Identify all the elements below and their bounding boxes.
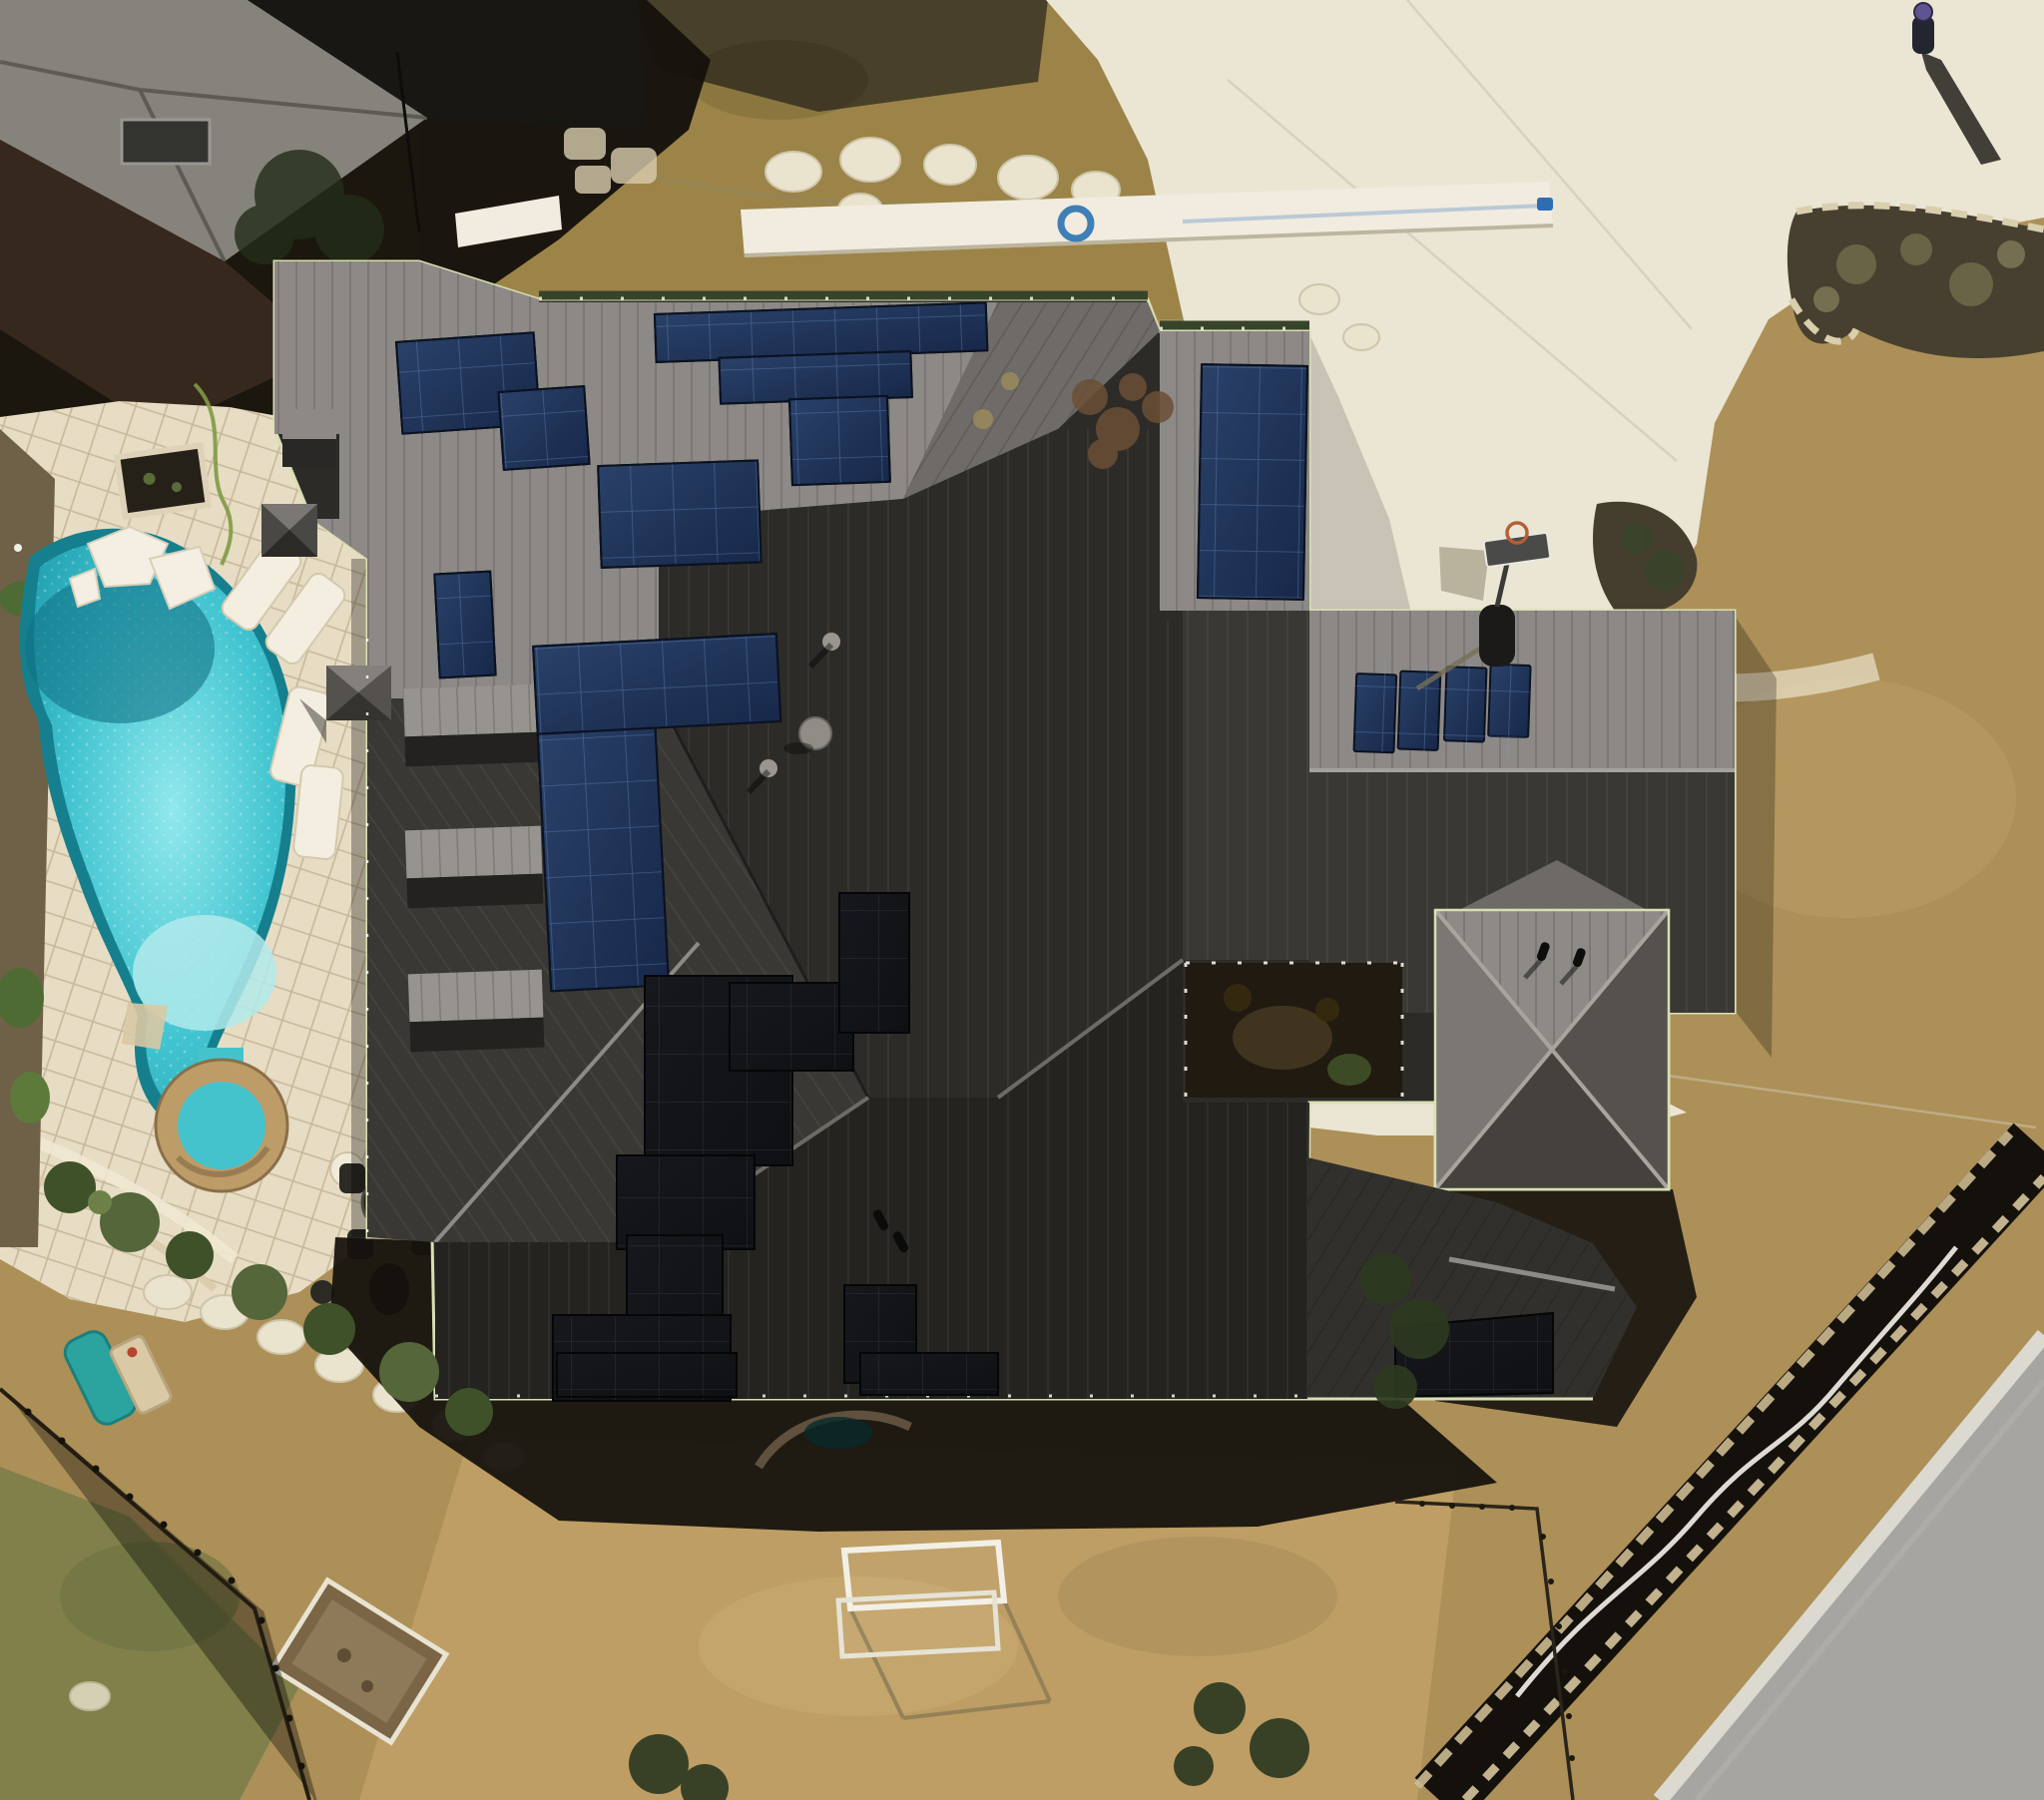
plane-center-east-seams xyxy=(1183,611,1309,960)
courtyard-plant xyxy=(1327,1054,1371,1086)
skimmer-head xyxy=(1537,198,1553,211)
planter-box xyxy=(117,445,209,516)
golf-ball xyxy=(14,544,22,552)
lawn-mottle-2 xyxy=(689,40,868,120)
pool-entry-step xyxy=(122,1003,168,1050)
west-wall-shadow xyxy=(351,559,367,1237)
dormer-bumpouts xyxy=(403,684,545,1053)
array-top-right-2x4 xyxy=(1198,364,1307,600)
hoop-base xyxy=(1479,605,1515,667)
deck-vent-pyramid xyxy=(261,504,317,557)
east-wall-shadow xyxy=(1737,619,1777,1058)
person-head xyxy=(1914,3,1932,21)
shadow-spa-water xyxy=(804,1417,872,1449)
nw-box-bumpout xyxy=(282,409,336,467)
array-left-1x2 xyxy=(434,572,495,678)
goal-frame-bottom xyxy=(838,1592,998,1656)
aerial-photo xyxy=(0,0,2044,1800)
aerial-photo-canvas xyxy=(0,0,2044,1800)
round-vent-shadow xyxy=(783,742,813,754)
pavilion-hip-roof xyxy=(1435,860,1669,1189)
garden-bed-top-right xyxy=(1788,206,2044,358)
spa-water xyxy=(178,1082,265,1169)
array-upper-left-2x2 xyxy=(498,386,589,470)
lawn-mottle xyxy=(1058,1537,1337,1656)
skylight xyxy=(122,120,210,164)
courtyard xyxy=(1186,963,1402,1098)
